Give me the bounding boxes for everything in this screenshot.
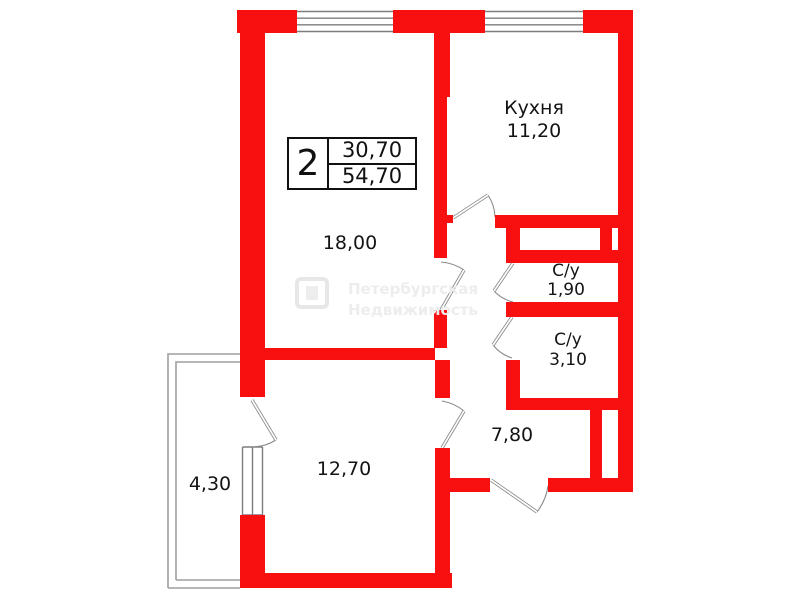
label-living-room-area: 18,00 [323,232,377,254]
entrance-door-leaf-gap [491,480,537,512]
label-wc1-name: С/у [552,261,580,281]
balcony-door-leaf-gap [252,400,276,440]
living-room-door-arc [441,262,464,270]
plan-lines-layer [0,0,800,600]
wall-segment [434,33,450,97]
label-kitchen-name: Кухня [504,97,564,119]
entrance-door-arc [537,486,548,512]
label-wc1-area: 1,90 [547,280,585,300]
bedroom-door-arc [442,401,464,411]
wall-segment [435,448,450,588]
wall-segment [618,33,633,492]
wall-segment [590,410,602,478]
floor-plan: Кухня11,2018,0012,707,804,30С/у1,90С/у3,… [0,0,800,600]
wall-segment [434,97,447,215]
apartment-info-box: 2 30,70 54,70 [287,137,417,190]
wall-segment [434,215,453,223]
wall-segment [600,228,612,252]
balcony-wall-inner [176,362,240,580]
watermark-logo-icon [294,276,334,312]
balcony-wall-outer [168,354,240,588]
wall-segment [448,478,490,492]
wall-segment [240,573,452,588]
kitchen-door-arc [488,195,495,217]
wall-segment [434,223,447,258]
wc1-door-arc [494,291,513,302]
wall-segment [393,10,485,33]
wall-segment [240,33,265,397]
label-balcony-area: 4,30 [189,473,231,495]
balcony-door-arc [253,440,276,447]
watermark-text-line2: Недвижимость [348,301,478,319]
wall-segment [506,360,520,398]
label-wc2-area: 3,10 [549,350,587,370]
wall-segment [583,10,633,33]
watermark-text-line1: Петербургская [348,280,478,298]
wall-segment [265,348,435,360]
wall-segment [506,398,633,410]
kitchen-door-leaf-gap [453,195,488,218]
wc1-door-leaf-gap [494,263,513,291]
watermark: Петербургская Недвижимость [294,276,334,316]
wc2-door-leaf-gap [493,317,512,345]
room-count: 2 [289,139,329,188]
wall-segment [435,360,450,398]
bedroom-door-leaf-gap [442,411,464,448]
label-wc2-name: С/у [554,330,582,350]
total-area-value: 54,70 [329,165,415,189]
label-bedroom-area: 12,70 [317,458,371,480]
wc2-door-arc [493,345,512,358]
living-area-value: 30,70 [329,139,415,165]
label-hall-area: 7,80 [491,424,533,446]
label-kitchen-area: 11,20 [507,120,561,142]
wall-segment [506,302,633,317]
wall-segment [237,10,297,33]
